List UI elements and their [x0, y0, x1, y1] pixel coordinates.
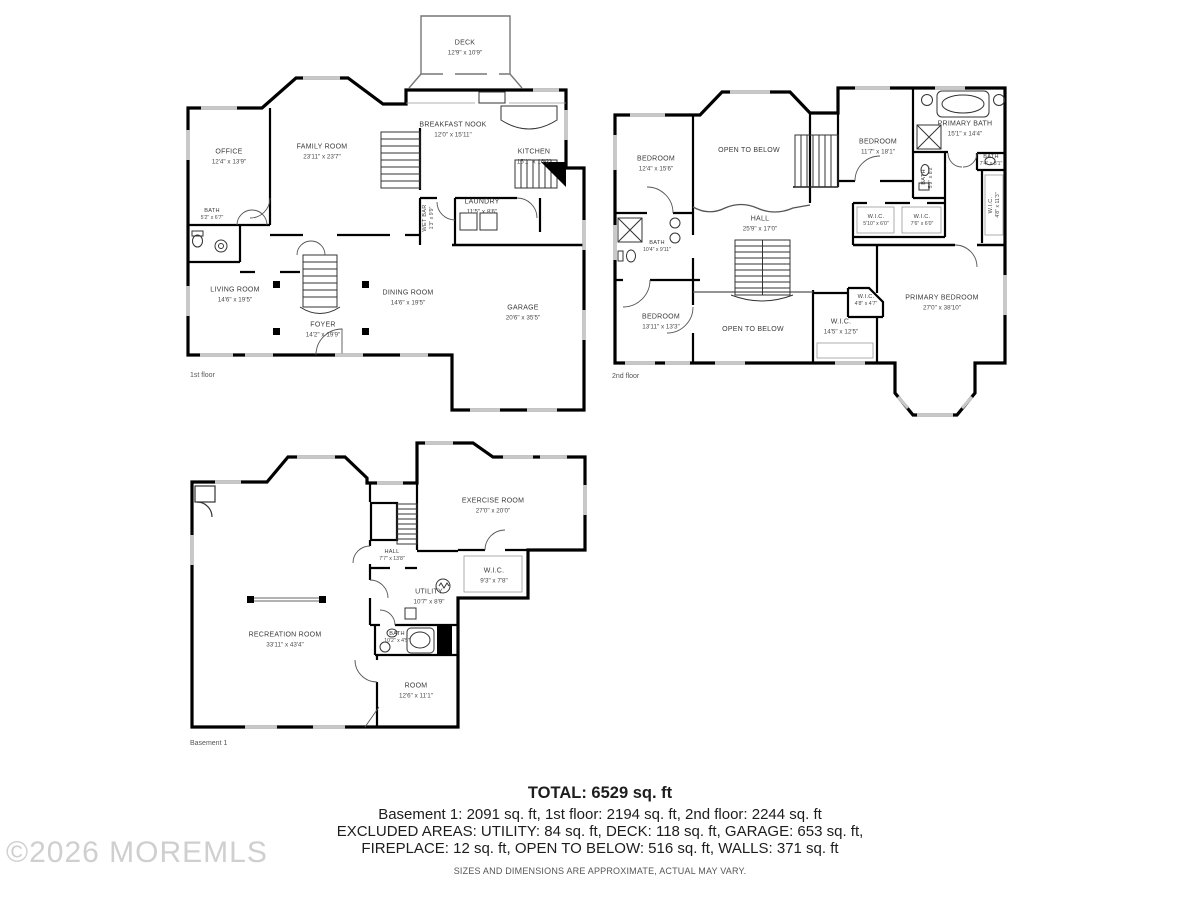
room-label-bath-3: BATH 5'9" x 8'2": [920, 166, 936, 189]
room-label-foyer: FOYER 14'2" x 19'9": [306, 320, 341, 339]
room-label-bedroom-2: BEDROOM 11'7" x 18'1": [859, 137, 897, 156]
room-label-wic-3: W.I.C. 4'8" x 11'3": [987, 192, 1003, 217]
room-label-office: OFFICE 12'4" x 13'9": [212, 147, 247, 166]
floor-plan-sheet: DECK 12'9" x 10'9" OFFICE 12'4" x 13'9" …: [0, 0, 1200, 900]
room-label-laundry: LAUNDRY 11'5" x 8'6": [464, 197, 499, 216]
room-label-basement-wic: W.I.C. 9'3" x 7'8": [480, 566, 508, 585]
room-label-basement-room: ROOM 12'6" x 11'1": [399, 681, 433, 700]
room-label-basement-hall: HALL 7'7" x 13'8": [379, 548, 405, 564]
room-label-breakfast-nook: BREAKFAST NOOK 12'0" x 15'11": [419, 120, 486, 139]
room-label-wet-bar: WET BAR 1'3" x 9'9": [421, 204, 437, 231]
first-floor-drawing: [185, 10, 590, 425]
room-label-recreation-room: RECREATION ROOM 33'11" x 43'4": [249, 630, 322, 649]
room-label-family-room: FAMILY ROOM 23'11" x 23'7": [297, 142, 348, 161]
room-label-bath-1: BATH 10'4" x 9'11": [643, 239, 671, 255]
room-label-basement-bath: BATH 10'2" x 4'5": [384, 630, 410, 646]
room-label-wic-4: W.I.C. 14'5" x 12'5": [824, 317, 859, 336]
room-label-primary-bath: PRIMARY BATH 15'1" x 14'4": [938, 119, 993, 138]
room-label-utility: UTILITY 10'7" x 8'9": [413, 587, 444, 606]
room-label-hall: HALL 25'9" x 17'0": [743, 214, 778, 233]
room-label-exercise-room: EXERCISE ROOM 27'0" x 20'0": [462, 496, 524, 515]
floor-sqft-breakdown: Basement 1: 2091 sq. ft, 1st floor: 2194…: [0, 806, 1200, 823]
second-floor-plan: BEDROOM 12'4" x 15'6" OPEN TO BELOW HALL…: [605, 75, 1017, 425]
room-label-living-room: LIVING ROOM 14'6" x 19'5": [210, 285, 259, 304]
basement-caption: Basement 1: [190, 740, 227, 747]
room-label-open-to-below-1: OPEN TO BELOW: [718, 146, 780, 156]
basement-plan: EXERCISE ROOM 27'0" x 20'0" HALL 7'7" x …: [185, 440, 610, 755]
room-label-bath-2: BATH 7'4" x 3'1": [980, 153, 1003, 169]
first-floor-caption: 1st floor: [190, 372, 215, 379]
room-label-bedroom-3: BEDROOM 13'11" x 13'3": [642, 312, 680, 331]
room-label-garage: GARAGE 20'6" x 35'5": [506, 303, 541, 322]
room-label-bedroom-1: BEDROOM 12'4" x 15'6": [637, 154, 675, 173]
room-label-primary-bedroom: PRIMARY BEDROOM 27'0" x 38'10": [905, 293, 979, 312]
room-label-deck: DECK 12'9" x 10'9": [448, 38, 483, 57]
room-label-open-to-below-2: OPEN TO BELOW: [722, 325, 784, 335]
room-label-dining-room: DINING ROOM 14'6" x 19'5": [383, 288, 434, 307]
mls-watermark: ©2026 MOREMLS: [6, 836, 268, 870]
room-label-bath: BATH 5'2" x 6'7": [201, 207, 224, 223]
first-floor-plan: DECK 12'9" x 10'9" OFFICE 12'4" x 13'9" …: [185, 10, 590, 425]
room-label-wic-2: W.I.C. 7'6" x 6'0": [911, 213, 934, 229]
room-label-wic-1: W.I.C. 5'10" x 6'0": [863, 213, 889, 229]
second-floor-caption: 2nd floor: [612, 373, 639, 380]
basement-drawing: [185, 440, 610, 755]
room-label-kitchen: KITCHEN 15'1" x 16'3": [517, 147, 552, 166]
room-label-wic-5: W.I.C. 4'8" x 4'7": [855, 293, 878, 309]
total-sqft: TOTAL: 6529 sq. ft: [0, 784, 1200, 803]
